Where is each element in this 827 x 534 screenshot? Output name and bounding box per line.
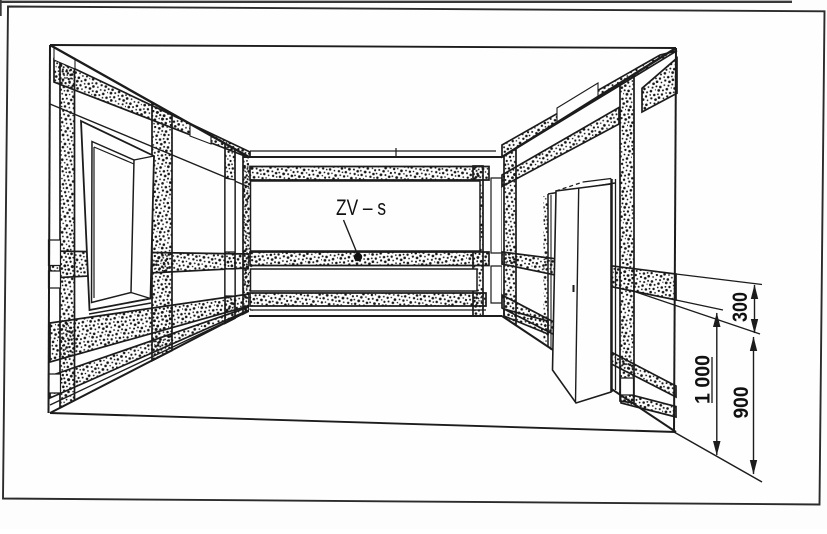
svg-text:ZV – s: ZV – s: [336, 195, 386, 220]
svg-text:900: 900: [730, 387, 753, 419]
svg-text:300: 300: [729, 292, 752, 322]
svg-text:1 000: 1 000: [692, 355, 715, 404]
